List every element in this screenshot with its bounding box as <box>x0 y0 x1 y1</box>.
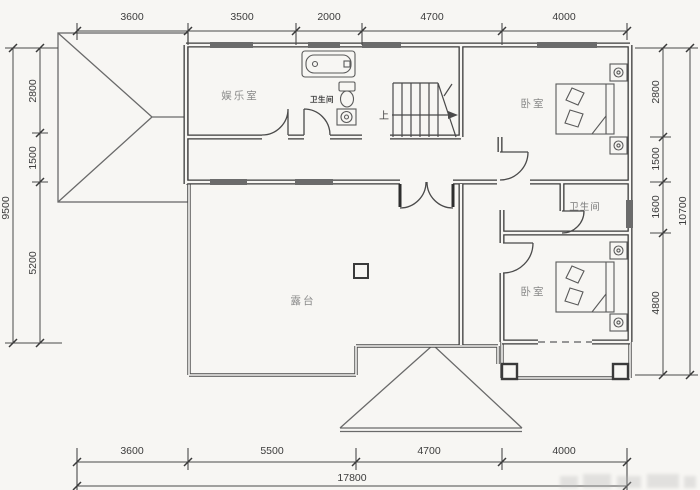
room-label-bedroom-bottom: 卧室 <box>521 285 546 298</box>
toilet <box>339 82 355 107</box>
dim-label: 5200 <box>27 251 39 275</box>
room-label-entertainment: 娱乐室 <box>221 89 259 102</box>
doors <box>262 109 584 273</box>
window <box>626 200 633 228</box>
bathtub <box>302 51 355 77</box>
room-label-terrace: 露台 <box>291 294 316 307</box>
balcony-pillar <box>502 364 517 379</box>
dim-label: 3600 <box>120 11 144 23</box>
stairs: 上 <box>379 83 458 137</box>
dim-label: 1600 <box>650 195 662 219</box>
sink <box>337 109 356 125</box>
dim-label: 1500 <box>27 146 39 170</box>
hip-roof-left <box>58 33 188 202</box>
door-bedroom-bottom <box>503 243 533 273</box>
stair-up-label: 上 <box>379 110 389 122</box>
dim-label: 5500 <box>260 445 284 457</box>
dim-label: 3500 <box>230 11 254 23</box>
window <box>295 179 333 185</box>
door-bathroom-right <box>562 211 584 233</box>
window <box>362 42 401 48</box>
dim-label: 2800 <box>27 79 39 103</box>
french-door-terrace <box>400 182 453 208</box>
dim-label-total: 10700 <box>677 196 689 225</box>
bed-bottom <box>556 242 627 331</box>
window <box>537 42 597 48</box>
window <box>210 179 247 185</box>
door-bathroom-top <box>304 109 330 135</box>
door-hall <box>500 152 528 180</box>
dim-label: 4000 <box>552 445 576 457</box>
window <box>210 42 253 48</box>
room-label-bathroom-top: 卫生间 <box>310 94 334 104</box>
floor-plan-drawing: 上 <box>0 0 700 490</box>
dim-label: 1500 <box>650 147 662 171</box>
dim-label: 4000 <box>552 11 576 23</box>
dim-label: 2800 <box>650 80 662 104</box>
dim-label: 2000 <box>317 11 341 23</box>
dim-label: 3600 <box>120 445 144 457</box>
dim-label-total: 9500 <box>0 196 12 220</box>
porch-roof-bottom <box>340 345 522 432</box>
terrace-column <box>354 264 368 278</box>
window <box>308 42 340 48</box>
dim-label-total: 17800 <box>337 472 366 484</box>
dim-label: 4700 <box>420 11 444 23</box>
bed-top <box>556 64 627 154</box>
dim-label: 4700 <box>417 445 441 457</box>
room-label-bathroom-right: 卫生间 <box>569 201 601 213</box>
dim-label: 4800 <box>650 291 662 315</box>
room-label-bedroom-top: 卧室 <box>521 97 546 110</box>
balcony-pillar <box>613 364 628 379</box>
door-entertainment <box>262 109 288 135</box>
stair-direction-arrow <box>448 111 458 119</box>
floor-plan-page: 上 <box>0 0 700 490</box>
